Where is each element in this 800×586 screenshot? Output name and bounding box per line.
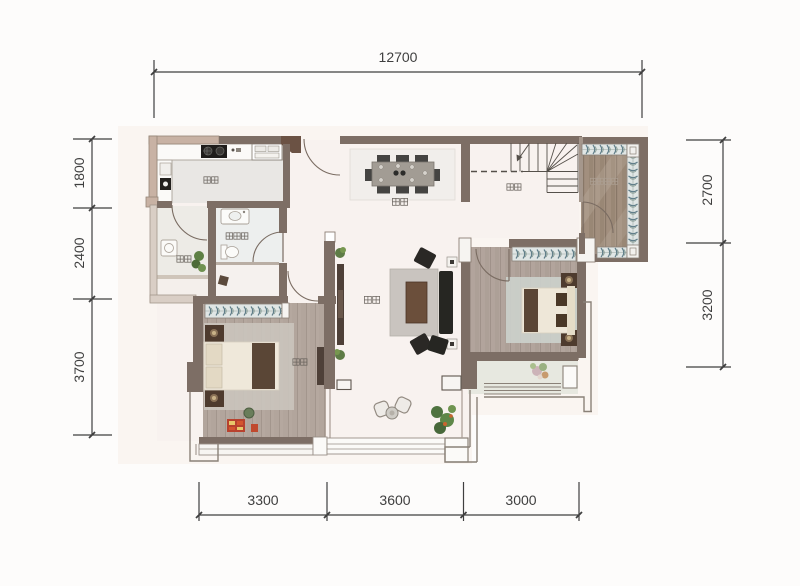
svg-text:3000: 3000 xyxy=(505,492,536,508)
svg-text:2400: 2400 xyxy=(71,237,87,268)
svg-text:12700: 12700 xyxy=(379,49,418,65)
svg-text:3300: 3300 xyxy=(247,492,278,508)
svg-text:1800: 1800 xyxy=(71,157,87,188)
svg-text:3200: 3200 xyxy=(699,289,715,320)
svg-text:3600: 3600 xyxy=(379,492,410,508)
svg-text:2700: 2700 xyxy=(699,174,715,205)
svg-text:3700: 3700 xyxy=(71,351,87,382)
